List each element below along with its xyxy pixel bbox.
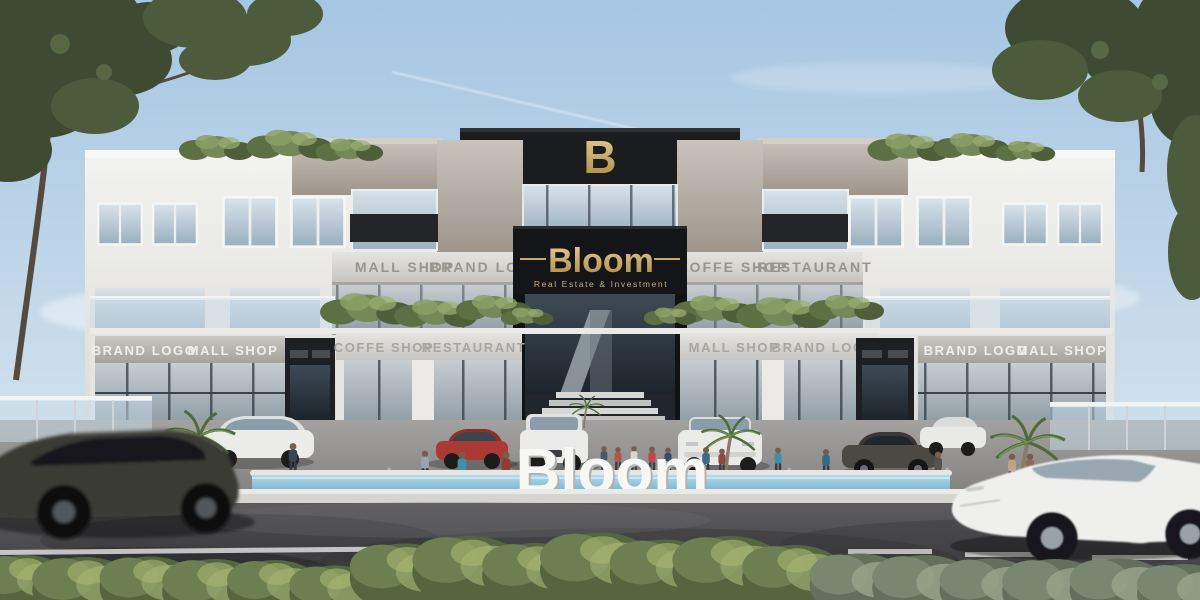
- kiosk-dark-left: [285, 338, 335, 425]
- storefront-right: MALL SHOP BRAND LOGO: [680, 333, 878, 425]
- kiosk-dark-right: [856, 338, 914, 425]
- balcony-band-left: [350, 214, 438, 242]
- scene: B MALL SHOP BRAND LOGO COFFE SHOP RES: [0, 0, 1200, 600]
- entrance: Bloom Real Estate & Investment: [513, 226, 687, 425]
- sign-gfl-brand-logo: BRAND LOGO: [92, 343, 197, 358]
- sign-mid-restaurant: RESTAURANT: [757, 259, 872, 275]
- bloom-sign-name: Bloom: [548, 242, 654, 280]
- building: B MALL SHOP BRAND LOGO COFFE SHOP RES: [85, 128, 1115, 426]
- bloom-sign-tagline: Real Estate & Investment: [534, 279, 668, 289]
- sign-gfr-mall-shop: MALL SHOP: [1017, 343, 1108, 358]
- render-image: B MALL SHOP BRAND LOGO COFFE SHOP RES: [0, 0, 1200, 600]
- balcony-band-right: [762, 214, 850, 242]
- sign-gfl-mall-shop: MALL SHOP: [188, 343, 279, 358]
- car-suv-dark-foreground: [0, 430, 255, 539]
- pylon-right: [677, 140, 763, 252]
- sign-gl-restaurant: RESTAURANT: [422, 340, 527, 355]
- pylon-left: [437, 140, 523, 252]
- sign-gl-coffe-shop: COFFE SHOP: [334, 340, 435, 355]
- sign-gr-mall-shop: MALL SHOP: [689, 340, 780, 355]
- storefront-left: COFFE SHOP RESTAURANT: [334, 333, 527, 425]
- logo-b-icon: B: [583, 131, 616, 183]
- sign-gfr-brand-logo: BRAND LOGO: [924, 343, 1029, 358]
